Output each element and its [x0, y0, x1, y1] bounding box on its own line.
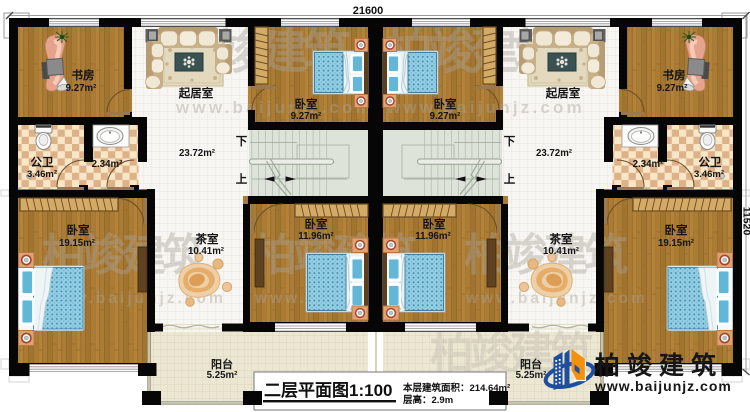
svg-text:卧室: 卧室 — [295, 97, 318, 111]
svg-text:下: 下 — [236, 135, 248, 148]
svg-text:卧室: 卧室 — [305, 217, 328, 231]
svg-text:19.15m²: 19.15m² — [59, 238, 96, 249]
svg-text:11.96m²: 11.96m² — [415, 231, 451, 242]
svg-text:茶室: 茶室 — [549, 232, 573, 246]
svg-text:11520: 11520 — [741, 207, 750, 236]
svg-text:10.41m²: 10.41m² — [543, 246, 580, 257]
svg-text:2.34m²: 2.34m² — [633, 159, 664, 170]
svg-text:书房: 书房 — [72, 68, 95, 82]
svg-text:阳台: 阳台 — [520, 357, 542, 371]
svg-text:23.72m²: 23.72m² — [536, 148, 573, 159]
svg-text:11.96m²: 11.96m² — [298, 231, 334, 242]
svg-text:www.baijunjz.com: www.baijunjz.com — [386, 98, 585, 117]
svg-text:茶室: 茶室 — [195, 232, 219, 246]
svg-text:卧室: 卧室 — [423, 217, 446, 231]
svg-text:2.34m²: 2.34m² — [92, 159, 123, 170]
svg-text:23.72m²: 23.72m² — [179, 148, 216, 159]
svg-text:卧室: 卧室 — [434, 97, 457, 111]
svg-text:www.baijunjz.com: www.baijunjz.com — [594, 378, 732, 394]
svg-text:起居室: 起居室 — [178, 86, 214, 100]
svg-text:二层平面图1:100: 二层平面图1:100 — [264, 381, 392, 400]
svg-text:下: 下 — [504, 135, 516, 148]
svg-text:上: 上 — [504, 172, 516, 186]
svg-text:书房: 书房 — [663, 68, 686, 82]
svg-text:公卫: 公卫 — [699, 156, 722, 169]
svg-text:5.25m²: 5.25m² — [207, 370, 238, 381]
svg-text:卧室: 卧室 — [67, 223, 90, 237]
svg-text:阳台: 阳台 — [211, 357, 233, 371]
svg-text:9.27m²: 9.27m² — [66, 83, 97, 94]
svg-text:3.46m²: 3.46m² — [694, 169, 724, 180]
svg-text:19.15m²: 19.15m² — [658, 238, 695, 249]
svg-text:3.46m²: 3.46m² — [27, 169, 57, 180]
svg-text:公卫: 公卫 — [31, 156, 54, 169]
svg-text:10.41m²: 10.41m² — [188, 246, 225, 257]
svg-text:21600: 21600 — [353, 5, 384, 17]
svg-text:上: 上 — [236, 172, 248, 186]
svg-text:卧室: 卧室 — [665, 223, 688, 237]
svg-text:5.25m²: 5.25m² — [516, 370, 547, 381]
svg-text:起居室: 起居室 — [545, 86, 581, 100]
svg-text:柏竣建筑: 柏竣建筑 — [595, 351, 723, 380]
svg-text:www.baijunjz.com: www.baijunjz.com — [175, 98, 374, 117]
svg-text:9.27m²: 9.27m² — [430, 111, 461, 122]
svg-text:层高：2.9m: 层高：2.9m — [403, 394, 453, 406]
svg-text:9.27m²: 9.27m² — [291, 111, 322, 122]
svg-text:9.27m²: 9.27m² — [657, 83, 688, 94]
